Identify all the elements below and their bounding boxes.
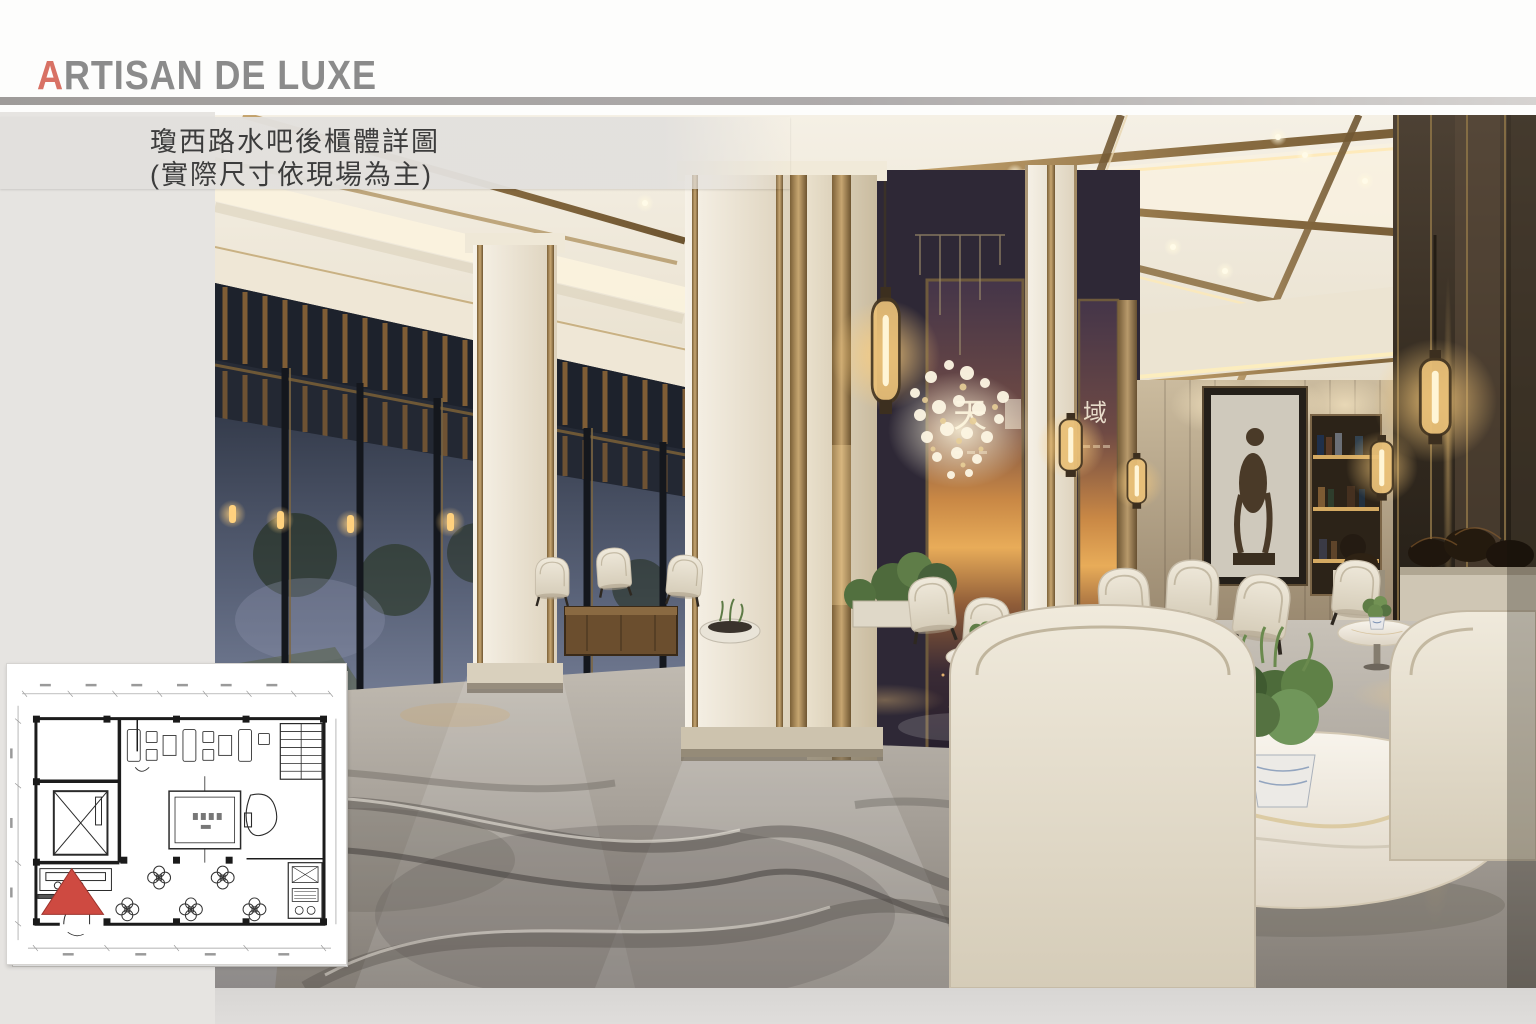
drawing-title-line2: (實際尺寸依現場為主) bbox=[150, 153, 433, 192]
lobby-rendering: 天 域 bbox=[215, 115, 1536, 988]
plan-sheet bbox=[6, 663, 347, 965]
brand-logo-text: RTISAN DE LUXE bbox=[64, 52, 377, 98]
brand-logo: ARTISAN DE LUXE bbox=[37, 52, 377, 99]
framed-artwork bbox=[1203, 387, 1307, 585]
bottom-margin bbox=[215, 988, 1536, 1024]
plan-piano bbox=[245, 794, 277, 836]
plan-water-bar bbox=[169, 776, 241, 862]
drawing-title-band: 瓊西路水吧後櫃體詳圖 (實際尺寸依現場為主) bbox=[0, 117, 790, 189]
header-divider-bar bbox=[0, 97, 1536, 105]
location-marker-triangle bbox=[42, 869, 104, 915]
plan-equipment-room bbox=[288, 863, 322, 919]
edge-vignette bbox=[1507, 115, 1536, 988]
plan-top-seating bbox=[127, 730, 269, 772]
floor-plan-inset bbox=[6, 663, 346, 965]
brand-logo-initial: A bbox=[37, 52, 64, 98]
marble-column-left bbox=[465, 233, 565, 693]
plan-stairs bbox=[280, 724, 322, 780]
marble-column-center bbox=[677, 161, 887, 761]
plan-elevator bbox=[54, 791, 108, 855]
plan-clover-tables bbox=[116, 866, 266, 921]
presentation-slide: 天 域 bbox=[0, 0, 1536, 1024]
header-band: ARTISAN DE LUXE bbox=[0, 0, 1536, 97]
